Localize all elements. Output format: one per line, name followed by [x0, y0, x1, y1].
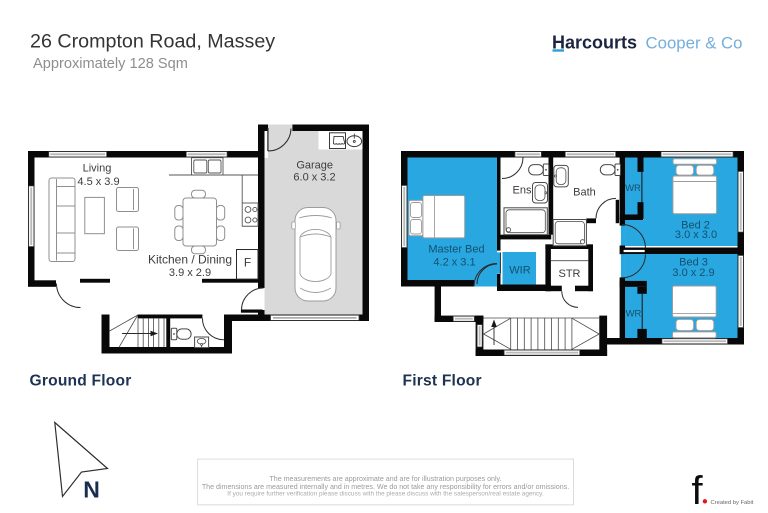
svg-text:Ens: Ens — [513, 185, 532, 197]
svg-text:Harcourts: Harcourts — [552, 33, 637, 53]
svg-text:3.9 x 2.9: 3.9 x 2.9 — [169, 267, 211, 279]
svg-text:If you require further verific: If you require further verification plea… — [227, 491, 544, 498]
svg-text:3.0 x 3.0: 3.0 x 3.0 — [675, 229, 717, 241]
svg-text:26 Crompton Road, Massey: 26 Crompton Road, Massey — [30, 31, 275, 53]
svg-text:f: f — [692, 469, 704, 513]
svg-text:The measurements are approxima: The measurements are approximate and are… — [269, 475, 501, 483]
svg-text:Ground Floor: Ground Floor — [30, 373, 132, 390]
svg-text:N: N — [83, 477, 100, 503]
svg-text:6.0 x 3.2: 6.0 x 3.2 — [293, 172, 335, 184]
svg-text:WR: WR — [626, 309, 642, 320]
svg-text:Living: Living — [83, 163, 112, 175]
svg-text:Bath: Bath — [573, 187, 596, 199]
svg-text:Kitchen / Dining: Kitchen / Dining — [148, 253, 232, 267]
svg-text:4.5 x 3.9: 4.5 x 3.9 — [77, 176, 119, 188]
svg-text:The dimensions are measured in: The dimensions are measured internally a… — [202, 483, 569, 491]
svg-text:Cooper & Co: Cooper & Co — [646, 34, 743, 53]
svg-text:Garage: Garage — [296, 160, 333, 172]
svg-text:WIR: WIR — [509, 265, 530, 277]
svg-text:STR: STR — [559, 268, 581, 280]
svg-text:Master Bed: Master Bed — [428, 244, 484, 256]
svg-text:First Floor: First Floor — [403, 373, 482, 390]
svg-text:Created by Fabit: Created by Fabit — [711, 500, 754, 506]
svg-text:WR: WR — [625, 183, 641, 194]
svg-text:F: F — [244, 256, 251, 270]
svg-text:Approximately 128 Sqm: Approximately 128 Sqm — [33, 56, 188, 72]
svg-text:4.2 x 3.1: 4.2 x 3.1 — [433, 257, 475, 269]
svg-text:3.0 x 2.9: 3.0 x 2.9 — [672, 267, 714, 279]
